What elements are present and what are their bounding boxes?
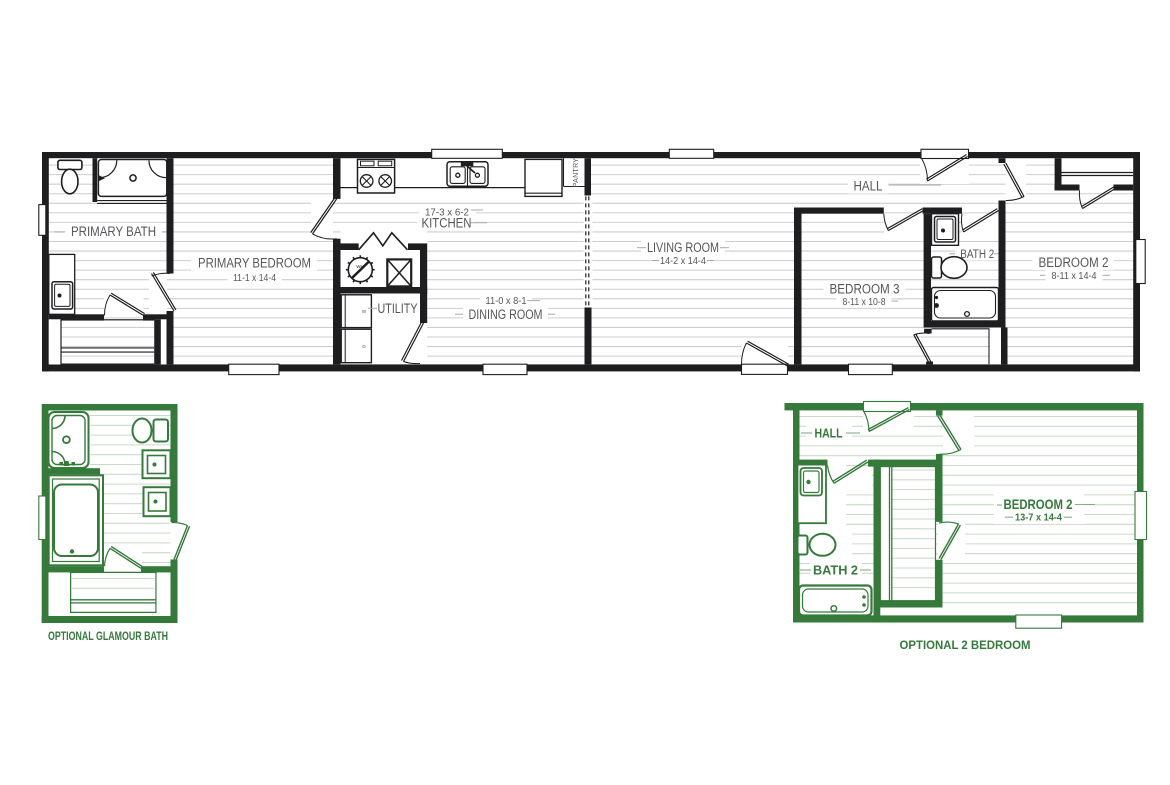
svg-text:HALL: HALL bbox=[854, 179, 883, 195]
svg-text:PRIMARY BEDROOM: PRIMARY BEDROOM bbox=[198, 256, 311, 272]
svg-text:DINING ROOM: DINING ROOM bbox=[469, 307, 543, 323]
svg-text:HALL: HALL bbox=[815, 425, 843, 440]
svg-text:13-7 x 14-4: 13-7 x 14-4 bbox=[1015, 513, 1062, 524]
svg-text:WH: WH bbox=[356, 264, 364, 269]
svg-text:OPTIONAL 2 BEDROOM: OPTIONAL 2 BEDROOM bbox=[900, 638, 1031, 652]
svg-text:PANTRY: PANTRY bbox=[573, 158, 580, 188]
svg-text:UTILITY: UTILITY bbox=[378, 301, 418, 317]
svg-text:BEDROOM 2: BEDROOM 2 bbox=[1039, 255, 1109, 271]
svg-text:BATH 2: BATH 2 bbox=[813, 562, 858, 577]
svg-text:LIVING ROOM: LIVING ROOM bbox=[647, 240, 719, 256]
svg-text:KITCHEN: KITCHEN bbox=[422, 215, 472, 231]
svg-text:BEDROOM 2: BEDROOM 2 bbox=[1004, 496, 1073, 512]
svg-text:8-11 x 10-8: 8-11 x 10-8 bbox=[843, 296, 886, 308]
svg-text:11-1 x 14-4: 11-1 x 14-4 bbox=[233, 272, 276, 284]
svg-text:OPTIONAL GLAMOUR BATH: OPTIONAL GLAMOUR BATH bbox=[48, 631, 168, 643]
svg-text:11-0 x 8-1: 11-0 x 8-1 bbox=[486, 295, 527, 307]
svg-text:14-2 x 14-4: 14-2 x 14-4 bbox=[660, 255, 706, 267]
svg-text:BATH 2: BATH 2 bbox=[960, 249, 994, 261]
svg-text:PRIMARY BATH: PRIMARY BATH bbox=[71, 224, 156, 240]
svg-text:8-11 x 14-4: 8-11 x 14-4 bbox=[1052, 270, 1097, 282]
